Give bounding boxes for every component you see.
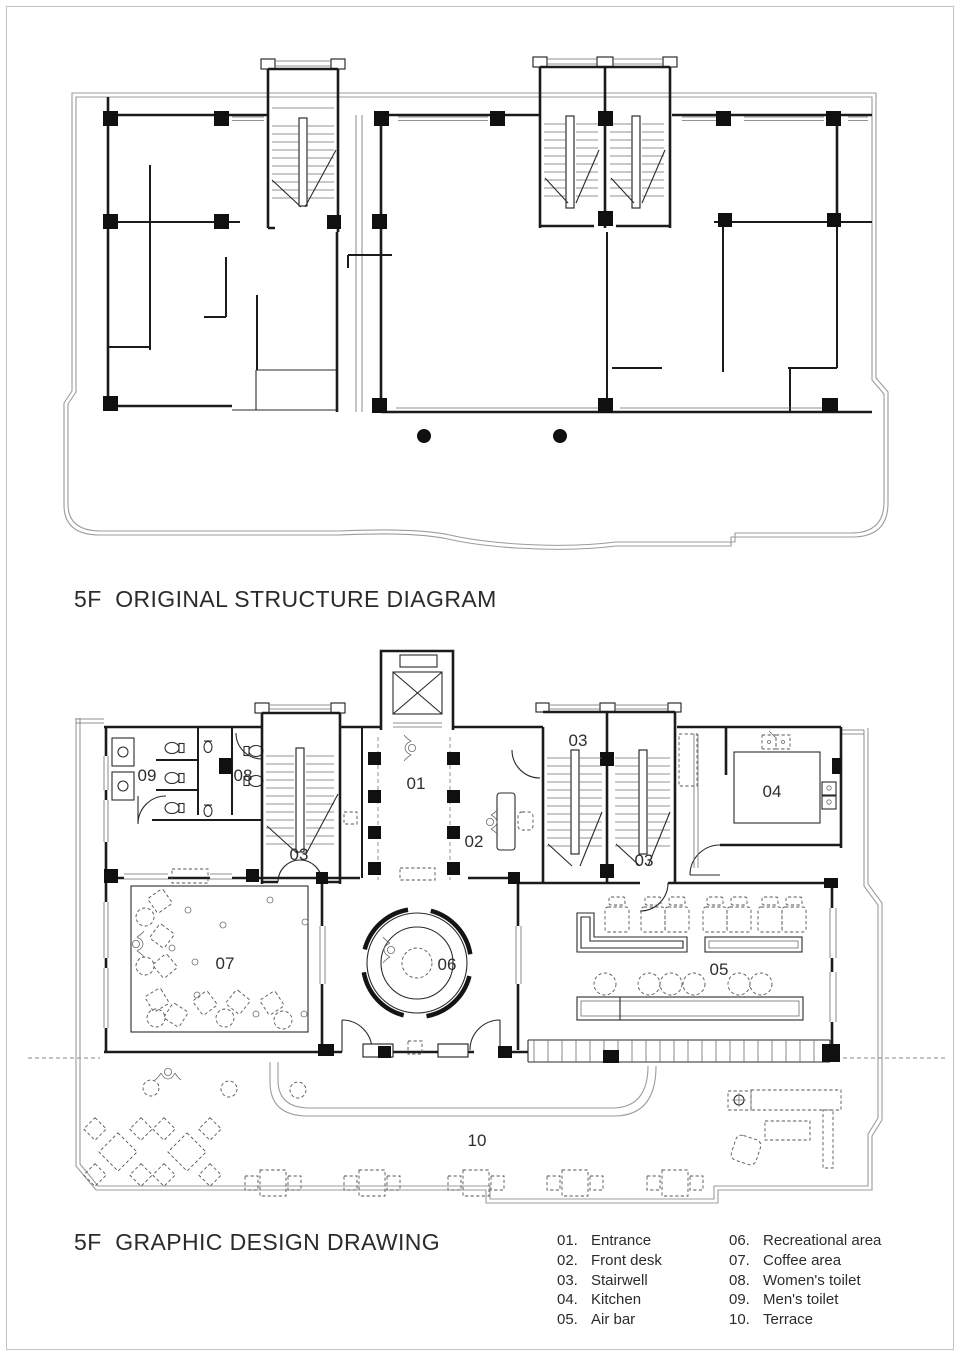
- legend-num: 04.: [557, 1290, 591, 1310]
- legend-column-1: 01.Entrance 02.Front desk 03.Stairwell 0…: [557, 1231, 729, 1330]
- legend-label: Men's toilet: [763, 1291, 838, 1308]
- legend-label: Recreational area: [763, 1232, 881, 1249]
- legend-label: Women's toilet: [763, 1272, 861, 1289]
- legend-num: 02.: [557, 1251, 591, 1271]
- legend-num: 06.: [729, 1231, 763, 1251]
- legend-column-2: 06.Recreational area 07.Coffee area 08.W…: [729, 1231, 881, 1330]
- exterior-walls: [101, 727, 841, 1062]
- legend-item: 10.Terrace: [729, 1310, 881, 1330]
- legend-item: 09.Men's toilet: [729, 1290, 881, 1310]
- graphic-design-plan: 09 08 03 01 02 03 03 04 07 06 05 10: [0, 620, 960, 1220]
- legend-num: 03.: [557, 1271, 591, 1291]
- original-structure-plan: [0, 0, 960, 620]
- label-mens-toilet: 09: [138, 766, 157, 785]
- stairwell-pair: [536, 703, 681, 911]
- label-recreation: 06: [438, 955, 457, 974]
- label-coffee: 07: [216, 954, 235, 973]
- right-wing-walls: [348, 115, 872, 412]
- person-figure: [486, 809, 498, 835]
- legend-num: 05.: [557, 1310, 591, 1330]
- legend-num: 10.: [729, 1310, 763, 1330]
- label-front-desk: 02: [465, 832, 484, 851]
- stairwell-pair-top: [533, 57, 677, 228]
- legend-item: 05.Air bar: [557, 1310, 729, 1330]
- person-figure: [404, 735, 416, 761]
- top-plan-title: 5F ORIGINAL STRUCTURE DIAGRAM: [74, 586, 497, 613]
- left-wing-walls: [104, 97, 362, 412]
- legend-label: Kitchen: [591, 1291, 641, 1308]
- person-figure: [132, 931, 144, 957]
- legend-num: 01.: [557, 1231, 591, 1251]
- label-entrance: 01: [407, 774, 426, 793]
- front-desk: [486, 727, 543, 884]
- person-figure: [155, 1068, 181, 1080]
- legend-label: Front desk: [591, 1252, 662, 1269]
- legend-label: Stairwell: [591, 1272, 648, 1289]
- label-air-bar: 05: [710, 960, 729, 979]
- legend-item: 08.Women's toilet: [729, 1271, 881, 1291]
- column-dot: [417, 429, 431, 443]
- legend-item: 04.Kitchen: [557, 1290, 729, 1310]
- legend-item: 02.Front desk: [557, 1251, 729, 1271]
- column-dot: [553, 429, 567, 443]
- legend-label: Entrance: [591, 1232, 651, 1249]
- legend-label: Terrace: [763, 1311, 813, 1328]
- legend-item: 06.Recreational area: [729, 1231, 881, 1251]
- label-womens-toilet: 08: [234, 766, 253, 785]
- legend-label: Air bar: [591, 1311, 635, 1328]
- bottom-plan-title: 5F GRAPHIC DESIGN DRAWING: [74, 1229, 440, 1256]
- legend-num: 08.: [729, 1271, 763, 1291]
- terrace-furniture: [84, 1068, 841, 1196]
- label-stairwell-left: 03: [290, 845, 309, 864]
- recreation-hall: [316, 872, 840, 1063]
- label-kitchen: 04: [763, 782, 782, 801]
- elevator: [381, 651, 453, 730]
- label-terrace: 10: [468, 1131, 487, 1150]
- deck-strip: [528, 1040, 830, 1062]
- legend-label: Coffee area: [763, 1252, 841, 1269]
- label-stairwell-right: 03: [635, 851, 654, 870]
- site-boundary: [64, 93, 888, 549]
- label-stairwell-mid: 03: [569, 731, 588, 750]
- legend-item: 07.Coffee area: [729, 1251, 881, 1271]
- drawing-sheet: 5F ORIGINAL STRUCTURE DIAGRAM: [0, 0, 960, 1356]
- legend-item: 01.Entrance: [557, 1231, 729, 1251]
- legend-num: 09.: [729, 1290, 763, 1310]
- stairwell-left-top: [261, 59, 345, 232]
- legend: 01.Entrance 02.Front desk 03.Stairwell 0…: [557, 1231, 881, 1330]
- toilets: [104, 727, 362, 883]
- legend-item: 03.Stairwell: [557, 1271, 729, 1291]
- walkway-curve: [270, 1062, 656, 1116]
- legend-num: 07.: [729, 1251, 763, 1271]
- columns: [103, 111, 841, 443]
- kitchen: [679, 727, 841, 875]
- entrance-corridor: [368, 735, 460, 880]
- air-bar: [577, 897, 806, 1020]
